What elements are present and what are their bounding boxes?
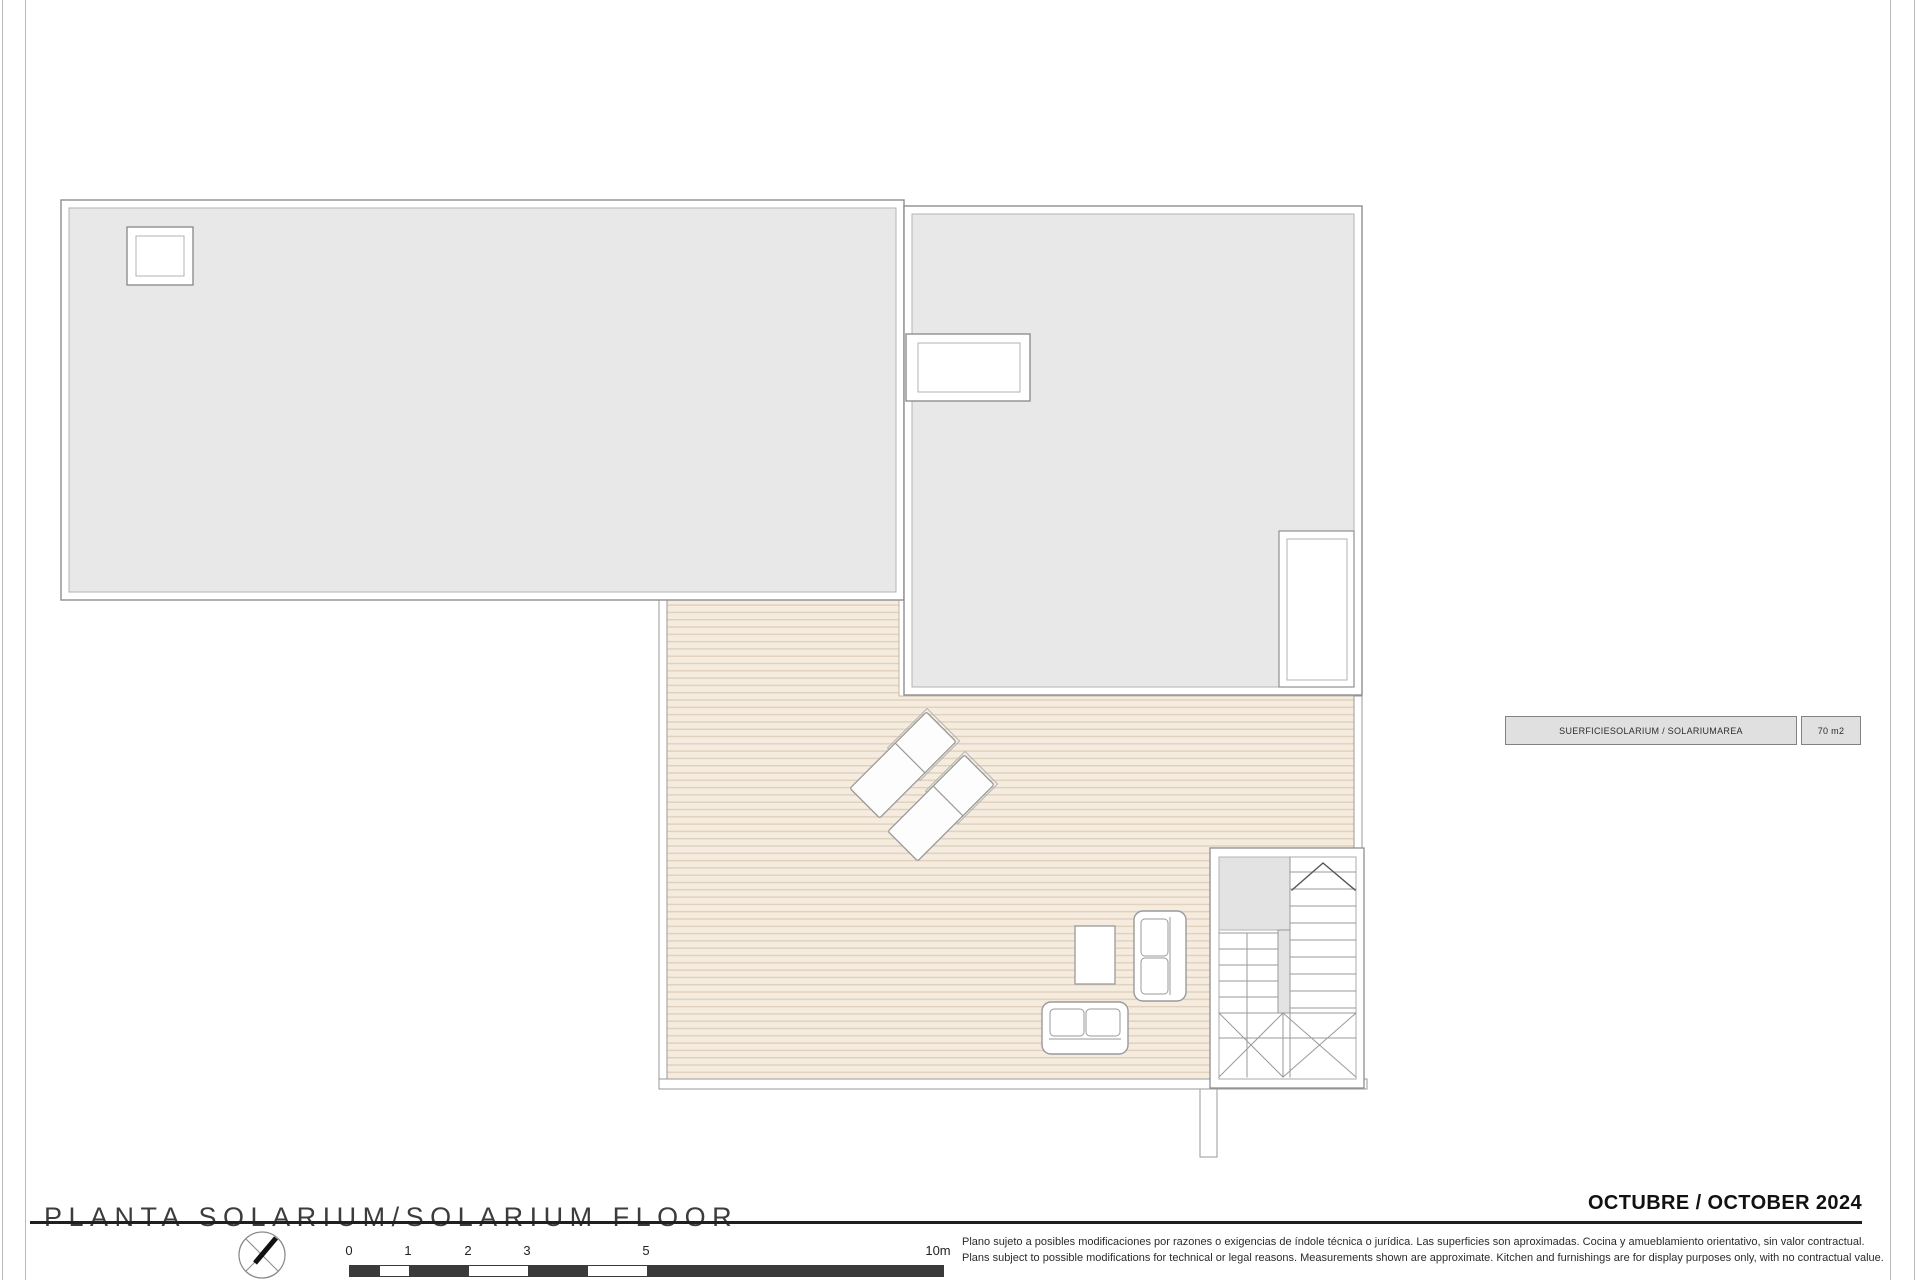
disclaimer: Plano sujeto a posibles modificaciones p… <box>962 1235 1862 1266</box>
disclaimer-spanish: Plano sujeto a posibles modificaciones p… <box>962 1235 1862 1251</box>
scale-tick-0: 0 <box>345 1243 352 1258</box>
coffee-table <box>1075 926 1115 984</box>
compass-icon <box>239 1232 285 1278</box>
roof-terrace-right <box>904 206 1362 695</box>
scale-seg <box>469 1266 528 1276</box>
disclaimer-english: Plans subject to possible modifications … <box>962 1251 1862 1267</box>
scale-tick-10: 10m <box>925 1243 950 1258</box>
scale-seg <box>588 1266 647 1276</box>
scale-tick-3: 3 <box>523 1243 530 1258</box>
floor-plan-canvas <box>0 0 1920 1280</box>
scale-seg <box>409 1266 469 1276</box>
skylight-left-inner <box>136 236 184 276</box>
area-value: 70 m2 <box>1801 716 1861 745</box>
wall-stub-below-stairs <box>1200 1089 1217 1157</box>
page-title: PLANTA SOLARIUM/SOLARIUM FLOOR <box>44 1202 738 1233</box>
drawing-date: OCTUBRE / OCTOBER 2024 <box>1588 1192 1862 1215</box>
scale-seg <box>350 1266 380 1276</box>
title-block-rule <box>30 1221 1862 1224</box>
skylight-right-inner <box>918 343 1020 392</box>
scale-seg <box>380 1266 409 1276</box>
deck-wall-left <box>659 592 667 1088</box>
stairwell <box>1200 848 1364 1157</box>
scale-seg <box>528 1266 588 1276</box>
stair-landing-void <box>1219 857 1290 930</box>
drawing-sheet: SUERFICIESOLARIUM / SOLARIUMAREA 70 m2 P… <box>0 0 1920 1280</box>
stair-center-wall <box>1278 930 1290 1013</box>
sofa-bottom <box>1042 1002 1128 1054</box>
roof-opening-inner <box>1287 539 1347 680</box>
scale-seg <box>647 1266 943 1276</box>
area-label: SUERFICIESOLARIUM / SOLARIUMAREA <box>1505 716 1797 745</box>
scale-bar <box>349 1265 944 1277</box>
scale-tick-5: 5 <box>642 1243 649 1258</box>
sofa-right <box>1134 911 1186 1001</box>
area-summary-table: SUERFICIESOLARIUM / SOLARIUMAREA 70 m2 <box>1505 716 1861 745</box>
deck-wall-right <box>1354 696 1362 850</box>
scale-tick-2: 2 <box>464 1243 471 1258</box>
roof-terrace-left <box>61 200 904 600</box>
scale-tick-1: 1 <box>404 1243 411 1258</box>
